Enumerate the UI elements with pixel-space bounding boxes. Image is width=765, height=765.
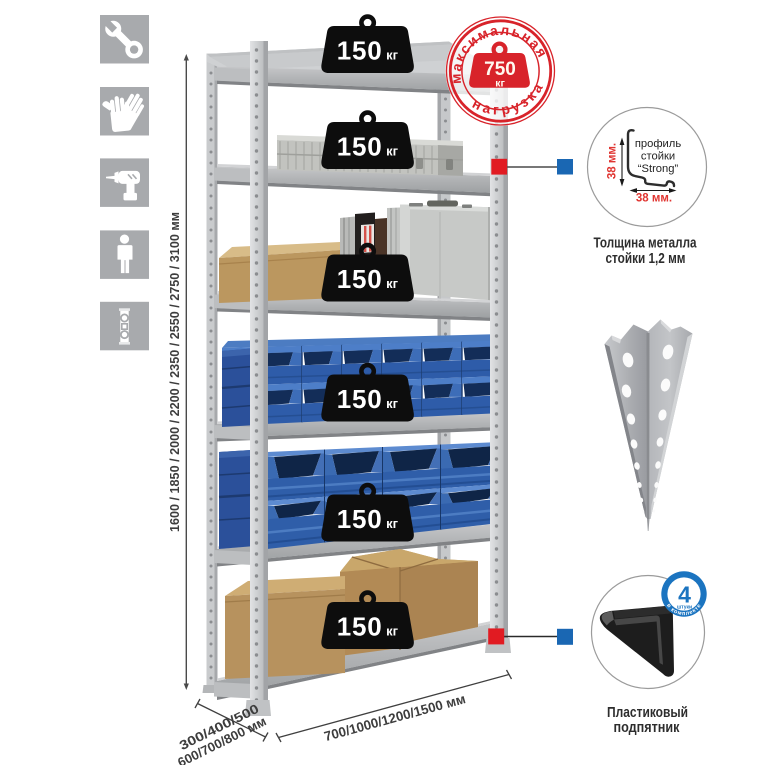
svg-text:Толщина металла: Толщина металла xyxy=(594,236,698,252)
svg-text:кг: кг xyxy=(386,144,399,159)
svg-text:штуки: штуки xyxy=(677,605,692,611)
svg-text:подпятник: подпятник xyxy=(614,720,681,736)
svg-text:стойки 1,2 мм: стойки 1,2 мм xyxy=(606,251,686,267)
svg-text:кг: кг xyxy=(386,624,399,639)
svg-text:150: 150 xyxy=(337,132,383,162)
svg-text:кг: кг xyxy=(386,48,399,63)
svg-text:38 мм.: 38 мм. xyxy=(636,193,672,205)
svg-text:профиль: профиль xyxy=(635,138,681,150)
svg-text:150: 150 xyxy=(337,612,383,642)
svg-text:150: 150 xyxy=(337,384,383,414)
svg-text:кг: кг xyxy=(386,396,399,411)
svg-text:кг: кг xyxy=(386,276,399,291)
svg-text:Пластиковый: Пластиковый xyxy=(607,705,688,721)
svg-text:стойки: стойки xyxy=(641,151,675,163)
svg-text:“Strong”: “Strong” xyxy=(638,163,679,175)
svg-text:кг: кг xyxy=(386,516,399,531)
svg-text:150: 150 xyxy=(337,504,383,534)
svg-text:38 мм.: 38 мм. xyxy=(607,143,619,179)
svg-text:150: 150 xyxy=(337,36,383,66)
svg-text:150: 150 xyxy=(337,264,383,294)
svg-text:кг: кг xyxy=(495,78,505,90)
svg-text:1600 / 1850 / 2000 / 2200 / 23: 1600 / 1850 / 2000 / 2200 / 2350 / 2550 … xyxy=(167,212,182,532)
